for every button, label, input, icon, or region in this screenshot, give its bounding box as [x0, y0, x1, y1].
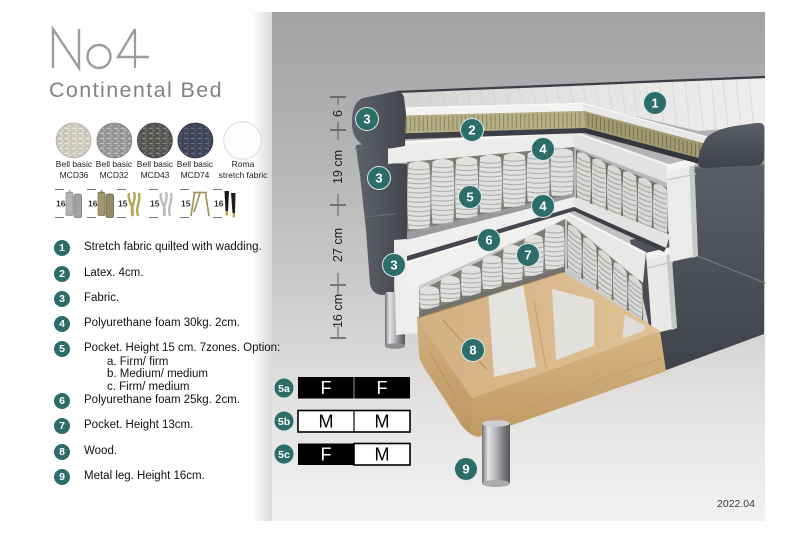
svg-text:1: 1 [651, 96, 658, 111]
svg-text:16 cm: 16 cm [331, 294, 345, 328]
svg-text:6: 6 [485, 233, 492, 248]
svg-text:3: 3 [390, 258, 397, 273]
svg-text:3: 3 [375, 171, 382, 186]
svg-text:2: 2 [468, 123, 475, 138]
svg-text:8: 8 [469, 343, 476, 358]
svg-text:5: 5 [466, 190, 473, 205]
svg-text:F: F [377, 378, 388, 398]
svg-text:M: M [319, 412, 334, 432]
svg-text:5b: 5b [278, 416, 290, 428]
svg-text:27 cm: 27 cm [331, 228, 345, 262]
svg-text:19 cm: 19 cm [331, 150, 345, 184]
svg-text:5a: 5a [278, 383, 290, 395]
svg-text:M: M [375, 412, 390, 432]
svg-text:3: 3 [363, 112, 370, 127]
svg-text:9: 9 [462, 462, 469, 477]
svg-text:F: F [321, 445, 332, 465]
svg-text:M: M [375, 445, 390, 465]
svg-text:5c: 5c [278, 449, 290, 461]
svg-text:4: 4 [539, 142, 547, 157]
svg-text:F: F [321, 378, 332, 398]
svg-text:2022.04: 2022.04 [717, 498, 755, 510]
svg-text:7: 7 [524, 248, 531, 263]
svg-text:4: 4 [539, 199, 547, 214]
svg-text:6: 6 [331, 110, 345, 117]
